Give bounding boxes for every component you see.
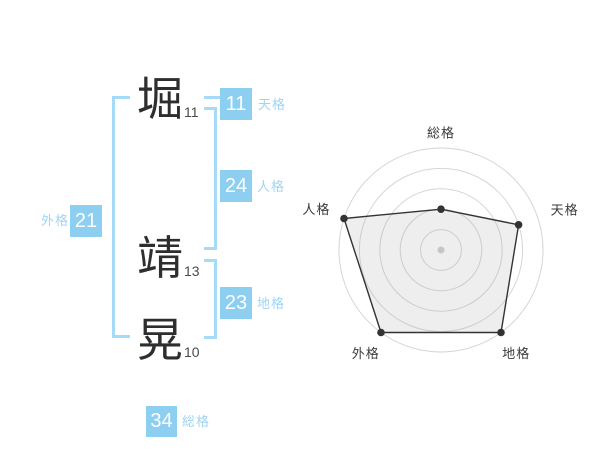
radar-axis-label: 外格	[352, 346, 380, 361]
chikaku-bracket	[204, 259, 217, 339]
gaikaku-bracket	[112, 96, 130, 338]
gaikaku-score-label: 外格	[41, 214, 69, 227]
stroke-count-2: 13	[184, 264, 200, 278]
radar-point	[437, 205, 445, 213]
radar-chart: 総格天格地格外格人格	[298, 108, 598, 370]
chikaku-score-label: 地格	[257, 297, 285, 310]
radar-center-dot	[438, 247, 445, 254]
radar-point	[377, 329, 385, 337]
tenkaku-score-box: 11	[220, 88, 252, 120]
radar-axis-label: 天格	[551, 202, 579, 217]
name-char-1: 堀	[137, 76, 183, 122]
name-analysis-page: 堀 11 靖 13 晃 10 11 天格 24 人格 23 地格 外格 21 3…	[0, 0, 600, 470]
tenkaku-score-label: 天格	[258, 98, 286, 111]
radar-point	[497, 329, 505, 337]
stroke-count-1: 11	[184, 105, 199, 119]
radar-axis-label: 人格	[302, 202, 330, 217]
soukaku-score-box: 34	[146, 406, 177, 437]
radar-axis-label: 総格	[427, 126, 455, 141]
radar-polygon	[344, 209, 519, 332]
soukaku-score-label: 総格	[182, 415, 210, 428]
jinkaku-bracket	[204, 107, 217, 250]
gaikaku-score-box: 21	[70, 205, 102, 237]
radar-axis-label: 地格	[502, 346, 530, 361]
name-char-2: 靖	[137, 235, 183, 281]
jinkaku-score-label: 人格	[257, 180, 285, 193]
radar-point	[340, 215, 348, 223]
stroke-count-3: 10	[184, 345, 200, 359]
name-char-3: 晃	[137, 317, 183, 363]
tenkaku-connector	[204, 96, 221, 99]
radar-point	[515, 221, 523, 229]
chikaku-score-box: 23	[220, 287, 252, 319]
jinkaku-score-box: 24	[220, 170, 252, 202]
